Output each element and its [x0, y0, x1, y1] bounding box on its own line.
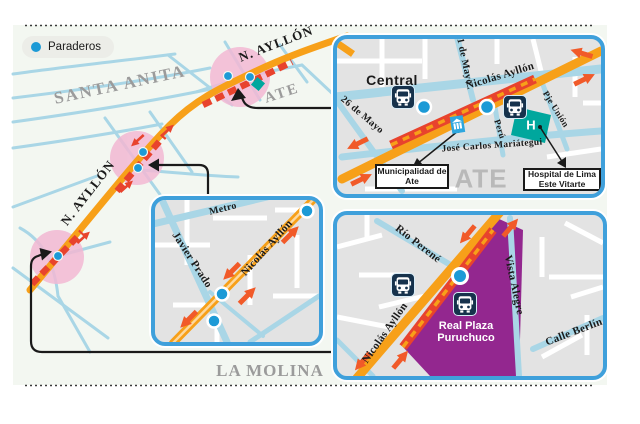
bus-icon [391, 85, 415, 109]
paradero-dot [480, 100, 494, 114]
paradero-legend-icon [31, 42, 41, 52]
hospital-h-label: H [526, 118, 535, 133]
paradero-dot [246, 73, 255, 82]
legend-label: Paraderos [48, 41, 101, 53]
inset-javier-prado: Metro Javier Prado Nicolás Ayllón [151, 196, 323, 346]
legend: Paraderos [22, 36, 114, 58]
paradero-dot [54, 252, 63, 261]
paradero-dot [417, 100, 431, 114]
inset-puruchuco: Río Perené Nicolás Ayllón Vista Alegre C… [333, 211, 607, 380]
paradero-dot [453, 269, 468, 284]
callout-municipalidad-text: Municipalidad de Ate [377, 167, 447, 187]
paradero-dot [139, 148, 148, 157]
bus-icon [453, 292, 477, 316]
label-central: Central [366, 72, 418, 88]
callout-municipalidad: Municipalidad de Ate [375, 164, 449, 189]
bus-icon [391, 273, 415, 297]
district-label-la-molina: LA MOLINA [216, 361, 324, 381]
callout-hospital-text: Hospital de Lima Este Vitarte [525, 170, 599, 190]
inset-central: Central Nicolás Ayllón 26 de Mayo 21 de … [333, 35, 605, 198]
paradero-dot [224, 72, 233, 81]
paradero-dot [301, 205, 314, 218]
paradero-dot [208, 315, 221, 328]
paradero-dot [216, 288, 229, 301]
infographic-map: SANTA ANITA ATE LA MOLINA N. AYLLÓN N. A… [0, 0, 640, 424]
callout-hospital: Hospital de Lima Este Vitarte [523, 168, 601, 191]
municipalidad-icon [450, 115, 465, 134]
real-plaza-label: Real Plaza Puruchuco [424, 320, 508, 344]
bus-icon [503, 95, 527, 119]
district-label-ate-inset: ATE [454, 164, 507, 195]
paradero-dot [134, 164, 143, 173]
inset-javier-prado-canvas [155, 200, 319, 342]
road-stub [337, 41, 353, 54]
